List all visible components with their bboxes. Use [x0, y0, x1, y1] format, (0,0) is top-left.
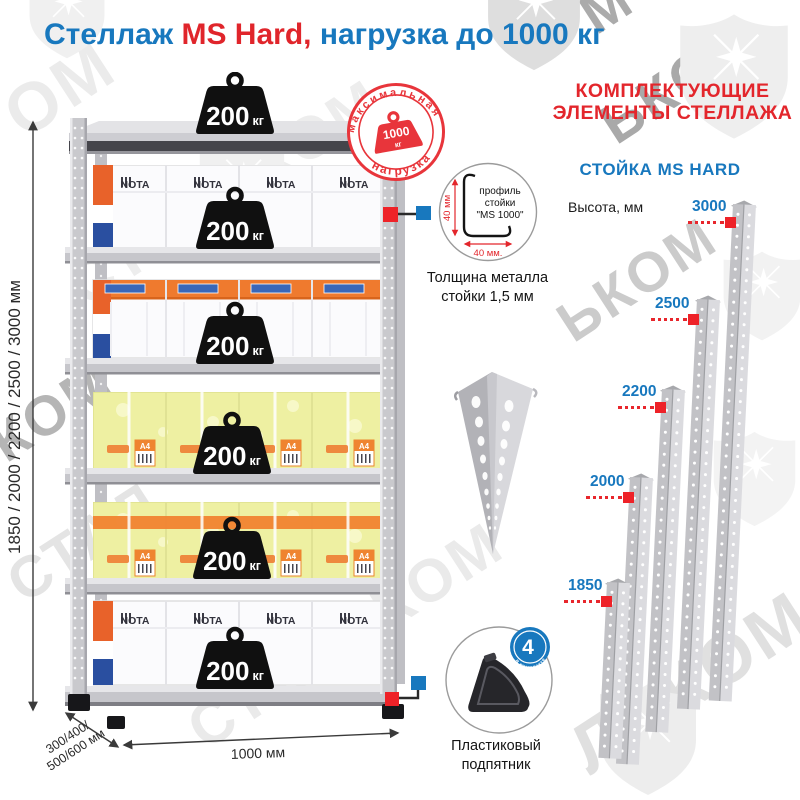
post-profile-detail: 40 мм 40 мм. профиль стойки "MS 1000"	[437, 161, 539, 263]
box-a4-label: A4	[286, 442, 297, 451]
red-square-marker	[655, 402, 666, 413]
profile-marker-blue	[416, 206, 431, 220]
profile-label: профиль	[479, 185, 520, 197]
title-part-blue: Стеллаж	[44, 18, 181, 51]
profile-marker-red	[383, 207, 398, 222]
red-square-marker	[601, 596, 612, 607]
height-column-label: Высота, мм	[568, 199, 643, 215]
title-part-blue: нагрузка до 1000 кг	[311, 18, 604, 51]
box-a4-label: A4	[140, 442, 151, 451]
page-title: Стеллаж MS Hard, нагрузка до 1000 кг	[44, 18, 605, 52]
box-brand-label: NOTA	[194, 615, 223, 627]
box-a4-label: A4	[359, 442, 370, 451]
count-badge: 4 штуки в комплекте	[510, 621, 550, 672]
foot-caption: Пластиковыйподпятник	[412, 737, 580, 775]
box-a4-label: A4	[140, 552, 151, 561]
dotted-leader	[618, 406, 654, 409]
box-a4-label: A4	[286, 552, 297, 561]
profile-dim-horizontal: 40 мм.	[474, 248, 503, 259]
box-brand-label: NOTA	[340, 615, 369, 627]
profile-dim-vertical: 40 мм	[442, 195, 453, 221]
width-dimension-label: 1000 мм	[231, 744, 286, 762]
box-brand-label: NOTA	[194, 179, 223, 191]
height-dimension-label: 1850 / 2000 / 2200 / 2500 / 3000 мм	[5, 280, 25, 554]
post-height-label: 1850	[564, 577, 612, 607]
dotted-leader	[586, 496, 622, 499]
foot-marker-blue	[411, 676, 426, 690]
red-square-marker	[623, 492, 634, 503]
product-infographic: ОМ ЬКОМ КОМ СТАЛЬКОМ ЬКОМ СТАЛ СТАЛЬКОМ …	[0, 0, 800, 800]
foot-marker-red	[385, 692, 399, 706]
count-badge-number: 4	[522, 636, 534, 659]
post-height-label: 2500	[651, 295, 699, 325]
upright-post	[707, 200, 757, 702]
red-square-marker	[688, 314, 699, 325]
weight-icon: 200кг	[196, 74, 274, 134]
profile-caption: Толщина металластойки 1,5 мм	[405, 269, 570, 307]
dotted-leader	[651, 318, 687, 321]
box-brand-label: NOTA	[121, 615, 150, 627]
dotted-leader	[564, 600, 600, 603]
plastic-foot-detail: 4 штуки в комплекте	[440, 620, 562, 742]
dotted-leader	[688, 221, 724, 224]
components-subheading: СТОЙКА MS HARD	[540, 160, 780, 180]
max-load-badge: максимальная нагрузка 1000 кг	[340, 76, 452, 188]
post-3d-wedge	[446, 356, 550, 560]
title-part-red: MS Hard,	[181, 18, 311, 51]
profile-label: стойки	[485, 198, 516, 209]
post-height-label: 2000	[586, 473, 634, 503]
profile-label: "MS 1000"	[476, 210, 524, 221]
post-height-label: 3000	[688, 198, 736, 228]
box-brand-label: NOTA	[121, 179, 150, 191]
post-height-label: 2200	[618, 383, 666, 413]
box-brand-label: NOTA	[267, 615, 296, 627]
box-brand-label: NOTA	[267, 179, 296, 191]
red-square-marker	[725, 217, 736, 228]
components-heading: КОМПЛЕКТУЮЩИЕЭЛЕМЕНТЫ СТЕЛЛАЖА	[540, 80, 800, 124]
box-a4-label: A4	[359, 552, 370, 561]
